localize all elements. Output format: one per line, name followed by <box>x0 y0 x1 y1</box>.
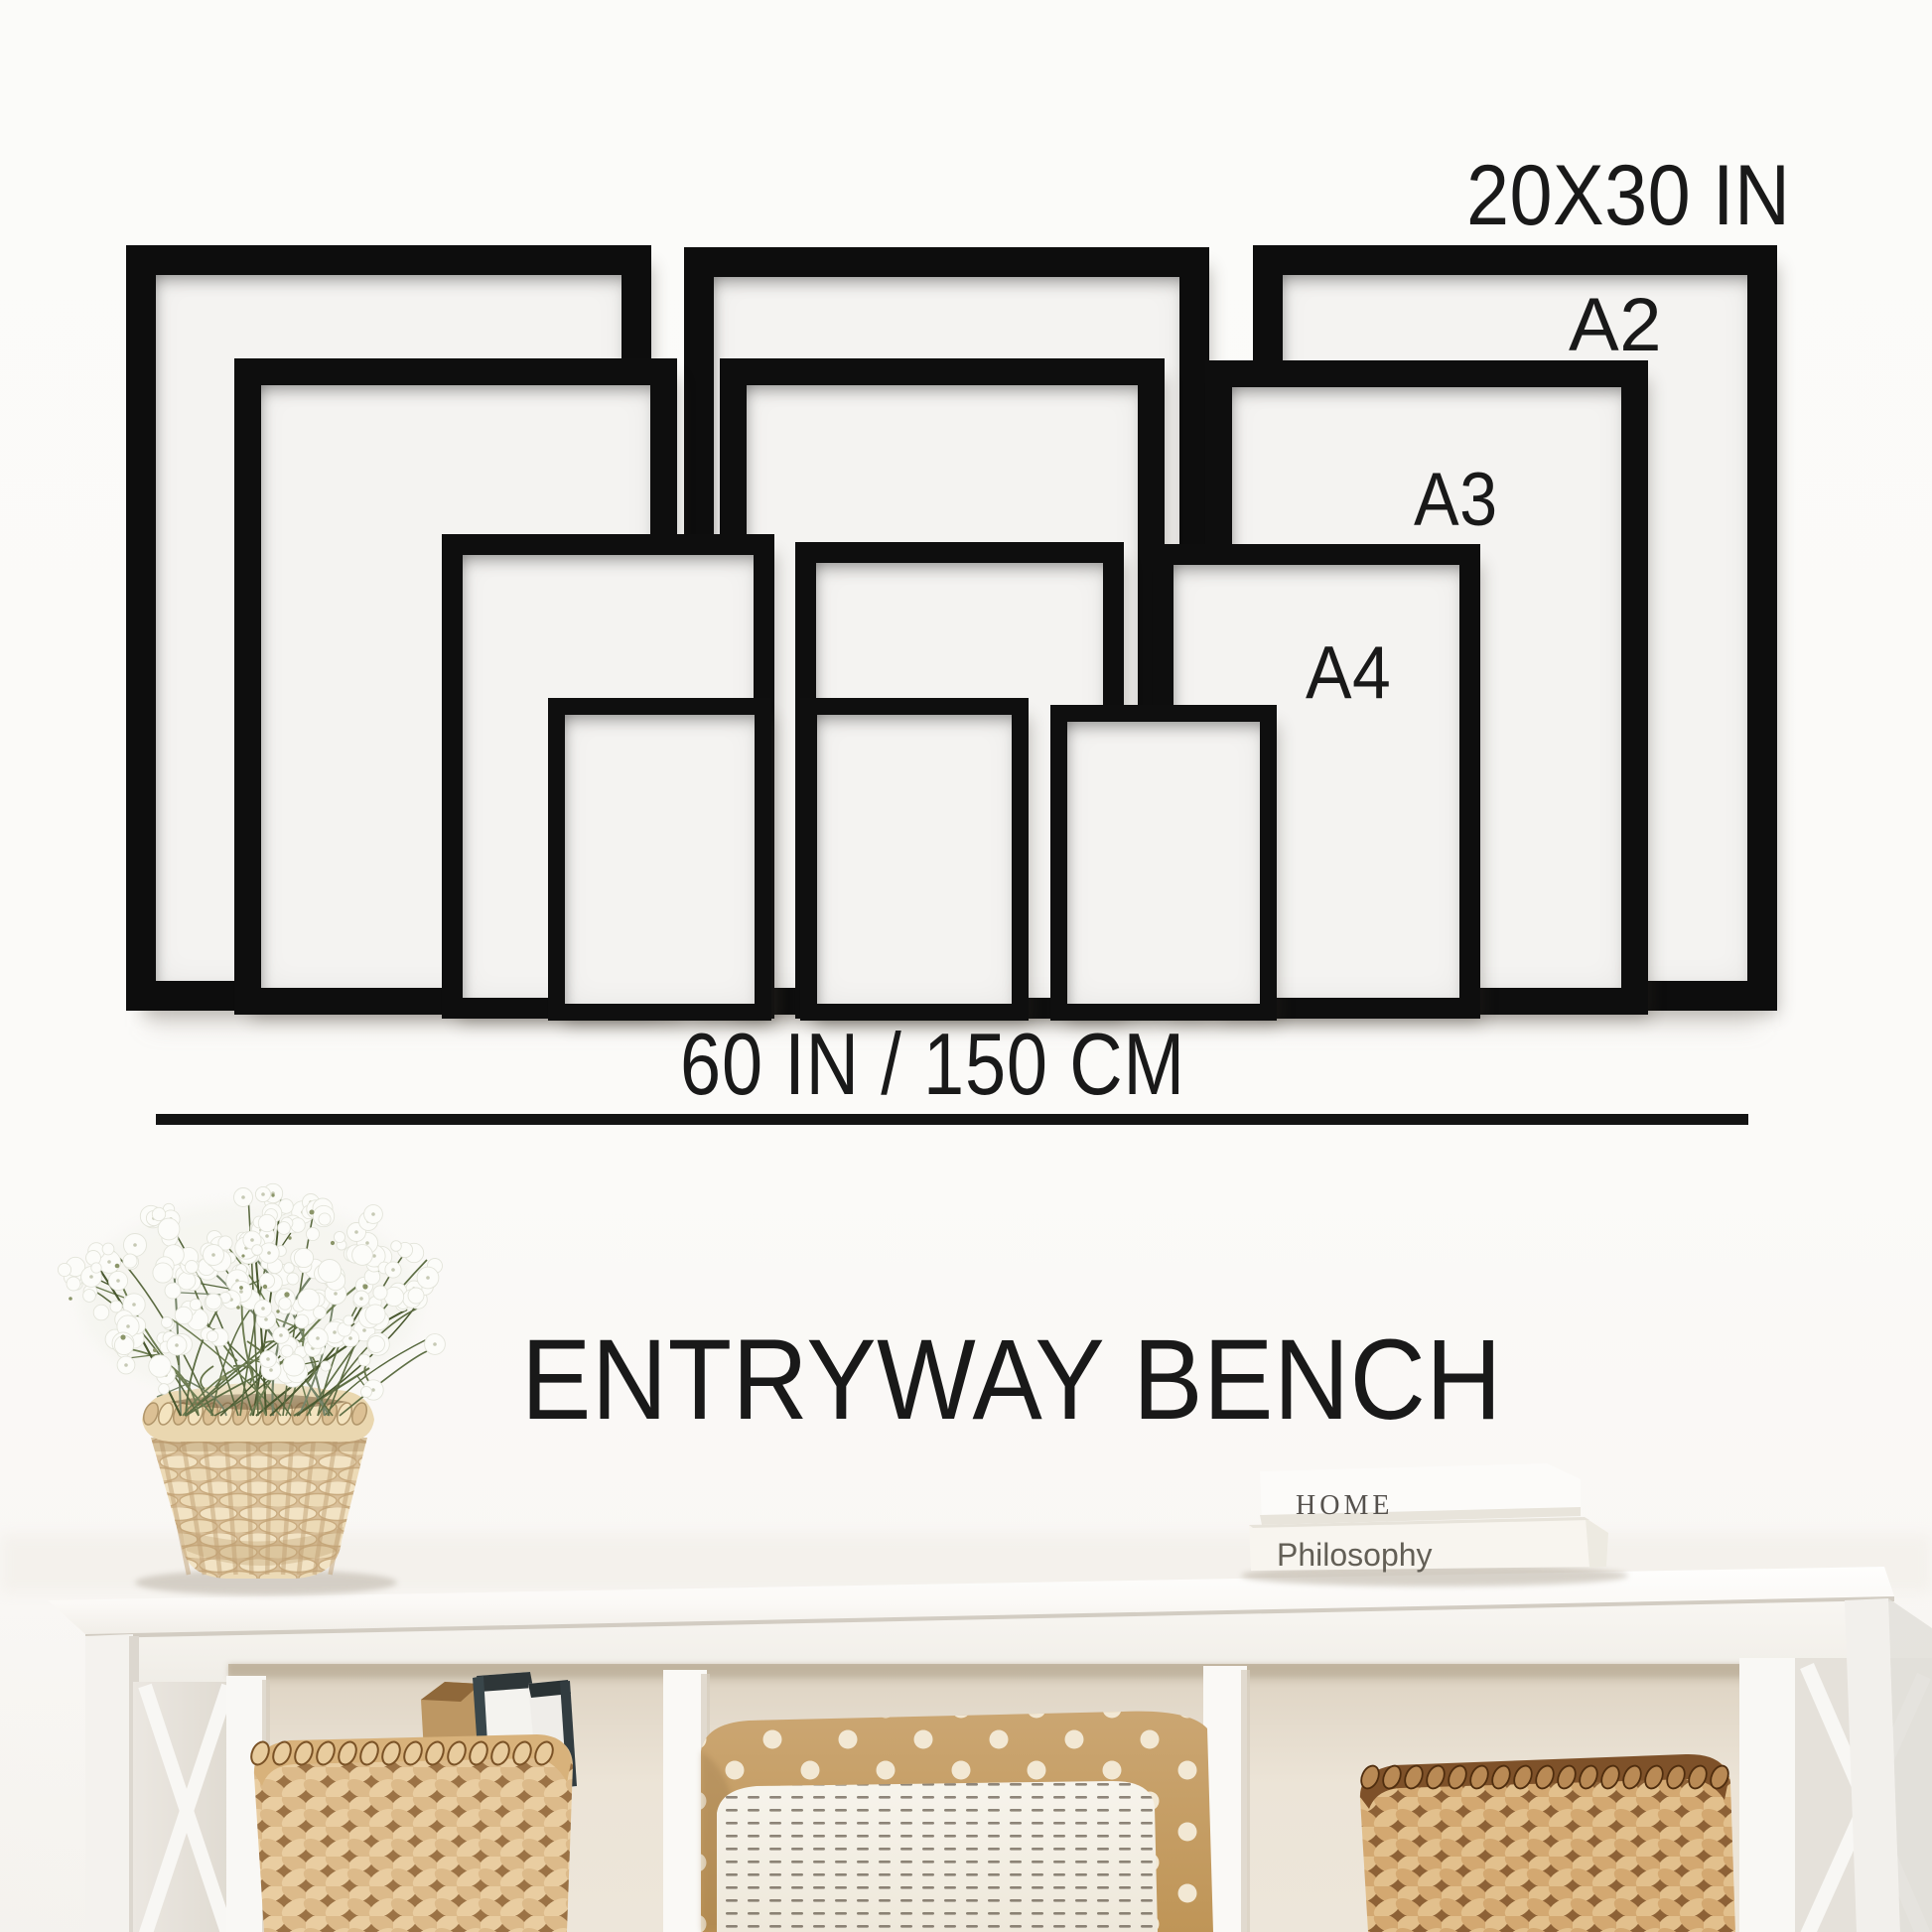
svg-text:HOME: HOME <box>1296 1490 1393 1521</box>
svg-text:Philosophy: Philosophy <box>1277 1537 1433 1573</box>
